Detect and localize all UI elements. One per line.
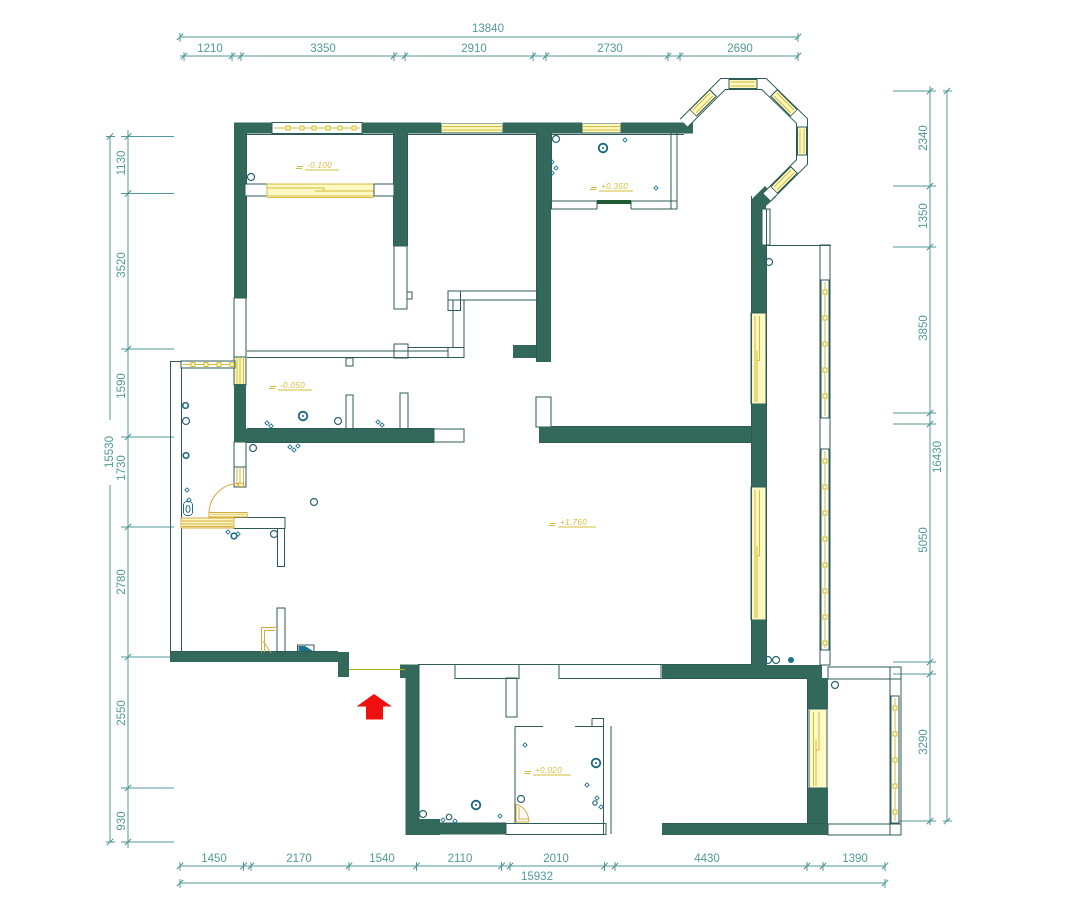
- svg-text:+0.020: +0.020: [535, 766, 562, 775]
- svg-text:1730: 1730: [116, 455, 128, 481]
- svg-text:3350: 3350: [310, 43, 336, 55]
- svg-text:1540: 1540: [369, 853, 395, 865]
- svg-text:13840: 13840: [472, 23, 504, 35]
- svg-text:3290: 3290: [918, 729, 930, 755]
- svg-text:-0.100: -0.100: [307, 161, 332, 170]
- svg-text:2010: 2010: [543, 853, 569, 865]
- svg-text:2780: 2780: [116, 569, 128, 595]
- svg-text:2110: 2110: [448, 853, 473, 865]
- svg-text:4430: 4430: [694, 853, 720, 865]
- svg-text:3520: 3520: [116, 252, 128, 278]
- svg-text:2550: 2550: [116, 700, 128, 726]
- svg-text:1210: 1210: [197, 43, 223, 55]
- svg-text:2170: 2170: [286, 853, 312, 865]
- svg-text:16430: 16430: [932, 441, 944, 473]
- svg-text:15932: 15932: [521, 871, 553, 883]
- svg-text:930: 930: [116, 811, 128, 830]
- svg-text:+1.760: +1.760: [560, 518, 587, 527]
- svg-text:1390: 1390: [842, 853, 868, 865]
- svg-text:-0.050: -0.050: [280, 381, 305, 390]
- svg-text:5050: 5050: [918, 527, 930, 553]
- svg-text:2340: 2340: [918, 125, 930, 151]
- svg-text:1590: 1590: [116, 373, 128, 399]
- svg-text:2910: 2910: [461, 43, 487, 55]
- svg-text:1130: 1130: [116, 151, 128, 176]
- svg-text:1450: 1450: [201, 853, 227, 865]
- svg-text:15530: 15530: [104, 436, 116, 468]
- svg-text:2730: 2730: [597, 43, 623, 55]
- svg-text:3850: 3850: [918, 315, 930, 341]
- svg-text:2690: 2690: [727, 43, 753, 55]
- svg-text:+0.350: +0.350: [601, 182, 628, 191]
- svg-text:1350: 1350: [918, 203, 930, 229]
